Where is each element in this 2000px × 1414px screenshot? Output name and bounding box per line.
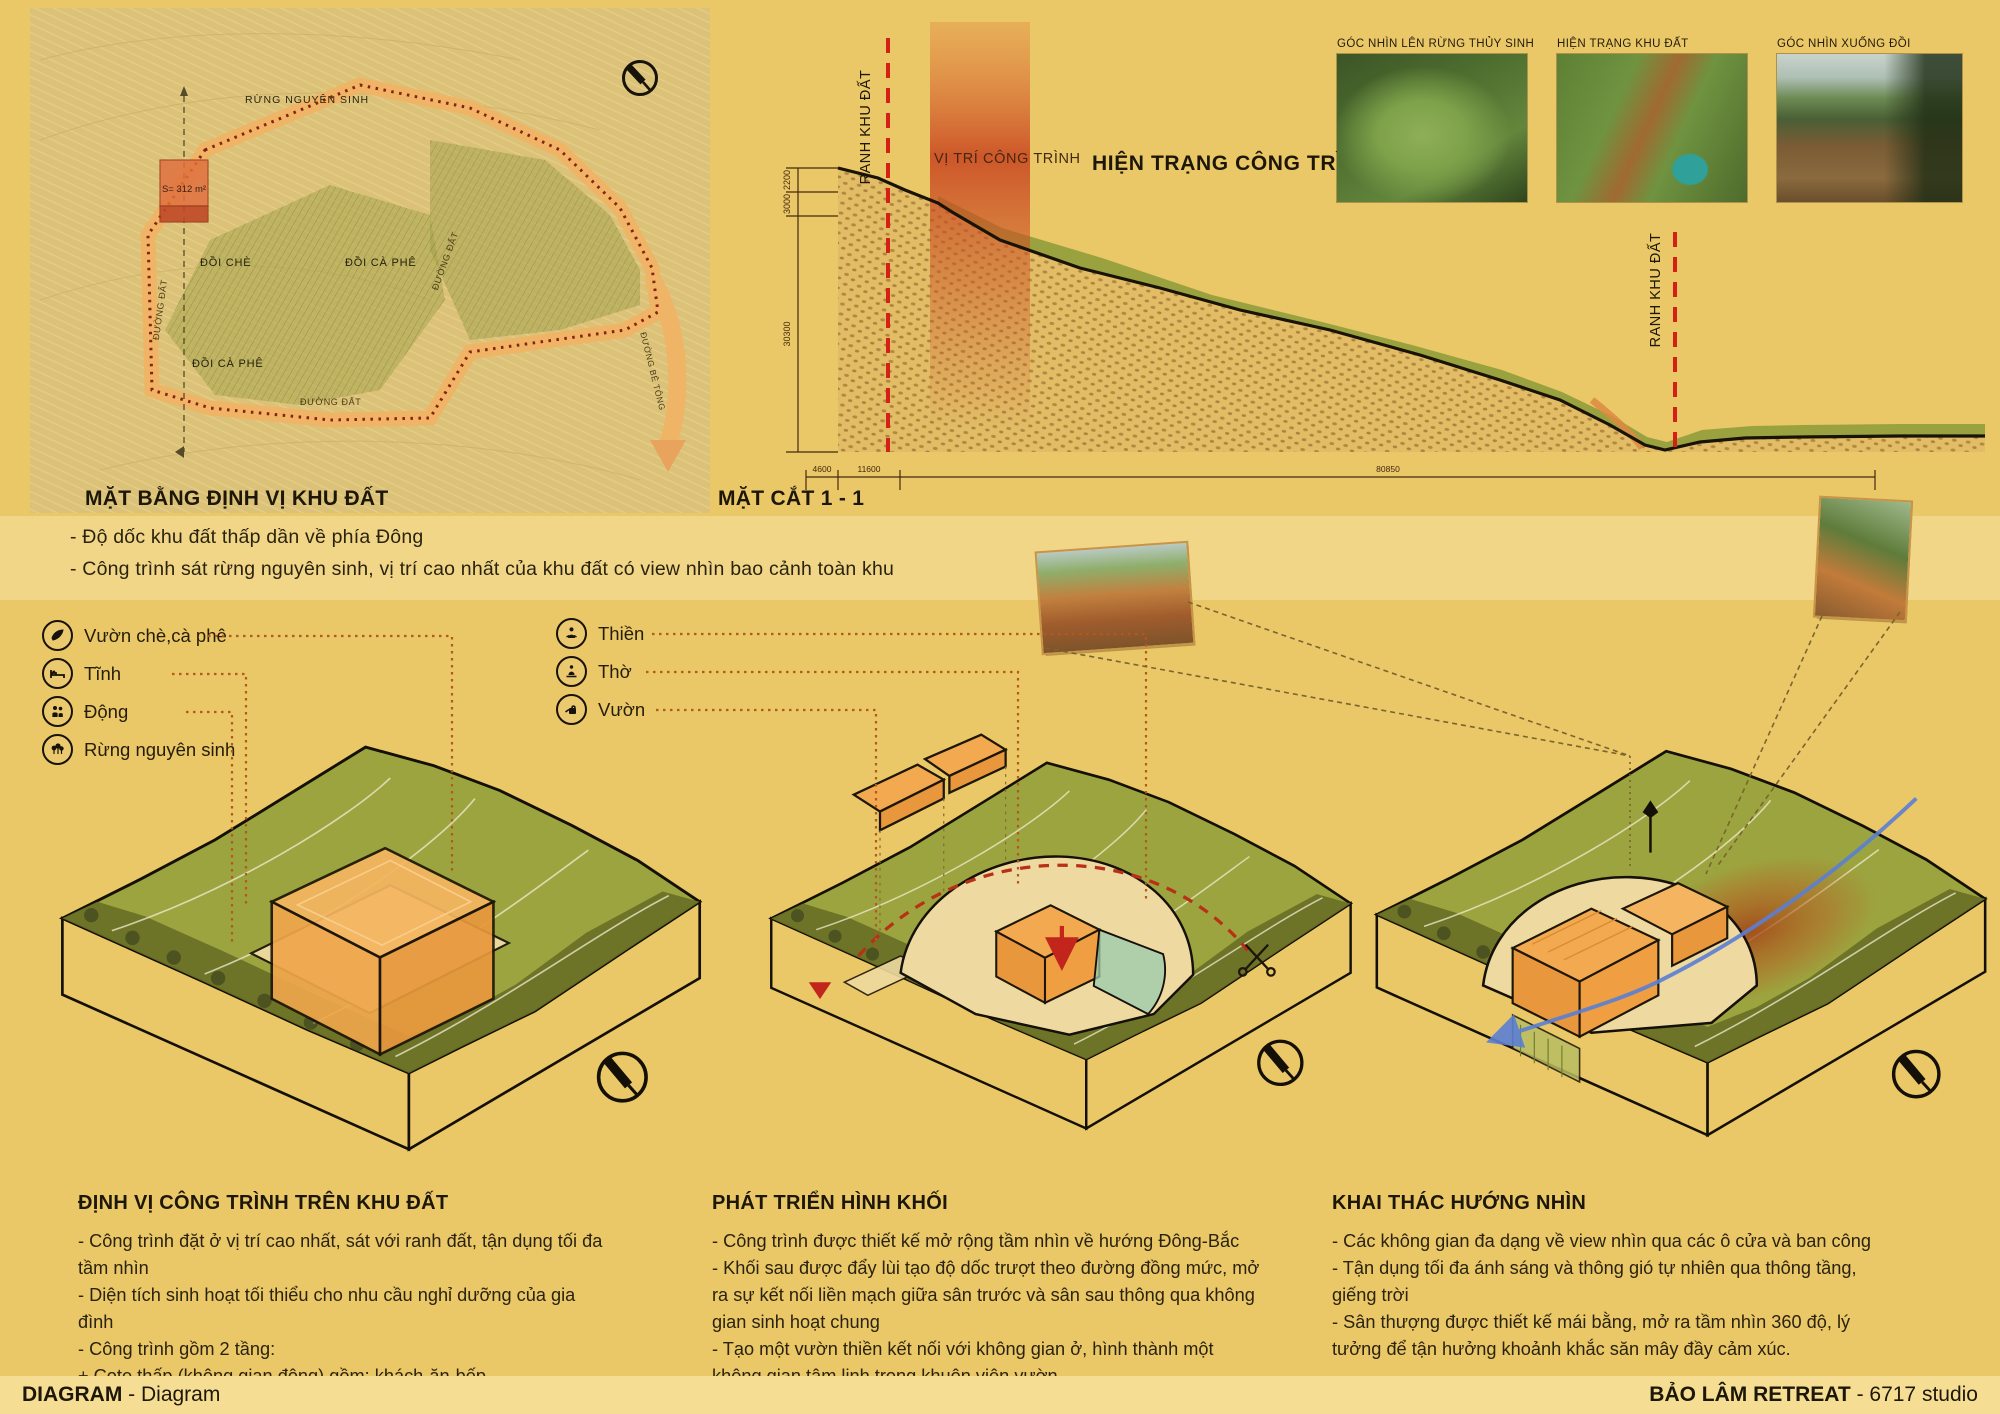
- column-heading: PHÁT TRIỂN HÌNH KHỐI: [712, 1192, 1260, 1215]
- legend-item-meditation: Thiền: [556, 618, 644, 649]
- column-heading: KHAI THÁC HƯỚNG NHÌN: [1332, 1192, 1892, 1215]
- area-label: S= 312 m²: [162, 184, 206, 195]
- vertical-dimensions: [786, 168, 838, 452]
- plan-note-1: - Độ dốc khu đất thấp dần về phía Đông: [70, 526, 423, 549]
- diagram-massing: [760, 690, 1360, 1160]
- column-line: - Công trình đặt ở vị trí cao nhất, sát …: [78, 1228, 613, 1282]
- column-line: - Khối sau được đẩy lùi tạo độ dốc trượt…: [712, 1255, 1260, 1336]
- photo-card-1: GÓC NHÌN LÊN RỪNG THỦY SINH: [1337, 38, 1534, 202]
- diagram-siting: [50, 683, 710, 1168]
- column-line: - Diện tích sinh hoạt tối thiểu cho nhu …: [78, 1282, 613, 1336]
- section-title: MẶT CẮT 1 - 1: [718, 487, 864, 511]
- column-line: - Công trình được thiết kế mở rộng tầm n…: [712, 1228, 1260, 1255]
- column-views: KHAI THÁC HƯỚNG NHÌN - Các không gian đa…: [1332, 1192, 1892, 1363]
- meditation-icon: [556, 618, 587, 649]
- forest-label: RỪNG NGUYÊN SINH: [245, 93, 369, 106]
- photo-site-aerial: [1557, 54, 1747, 202]
- dim-2200: 2200: [782, 170, 792, 190]
- compass-icon: [599, 1053, 646, 1100]
- dim-3000: 3000: [782, 194, 792, 214]
- column-line: - Công trình gồm 2 tầng:: [78, 1336, 613, 1363]
- position-label: VỊ TRÍ CÔNG TRÌNH: [934, 150, 1081, 167]
- coffee-hill-label-2: ĐỒI CÀ PHÊ: [192, 357, 264, 370]
- column-heading: ĐỊNH VỊ CÔNG TRÌNH TRÊN KHU ĐẤT: [78, 1192, 613, 1215]
- leaf-icon: [42, 620, 73, 651]
- photo-card-2: HIỆN TRẠNG KHU ĐẤT: [1557, 38, 1747, 202]
- plan-title: MẶT BẰNG ĐỊNH VỊ KHU ĐẤT: [85, 487, 389, 511]
- coffee-hill-label: ĐỒI CÀ PHÊ: [345, 256, 417, 269]
- building-position-band: [930, 22, 1030, 430]
- section-heading: HIỆN TRẠNG CÔNG TRÌNH: [1092, 151, 1374, 175]
- boundary-right-label: RANH KHU ĐẤT: [1647, 233, 1664, 348]
- studio-name: - 6717 studio: [1851, 1383, 1978, 1406]
- photo-hill-view: [1777, 54, 1962, 202]
- project-title: BẢO LÂM RETREAT: [1649, 1383, 1850, 1406]
- site-plan: S= 312 m² RỪNG NGUYÊN SINH ĐỒI CHÈ ĐỒI C…: [0, 0, 712, 513]
- presentation-board: S= 312 m² RỪNG NGUYÊN SINH ĐỒI CHÈ ĐỒI C…: [0, 0, 2000, 1414]
- plan-note-2: - Công trình sát rừng nguyên sinh, vị tr…: [70, 558, 894, 581]
- photo-caption-1: GÓC NHÌN LÊN RỪNG THỦY SINH: [1337, 38, 1534, 50]
- column-line: - Sân thượng được thiết kế mái bằng, mở …: [1332, 1309, 1892, 1363]
- column-massing: PHÁT TRIỂN HÌNH KHỐI - Công trình được t…: [712, 1192, 1260, 1390]
- column-line: - Tận dụng tối đa ánh sáng và thông gió …: [1332, 1255, 1892, 1309]
- view-photo-balcony: [1037, 543, 1194, 653]
- footer-right: BẢO LÂM RETREAT - 6717 studio: [1649, 1383, 1978, 1407]
- compass-icon: [1259, 1041, 1302, 1084]
- legend-item-garden: Vườn chè,cà phê: [42, 620, 227, 651]
- column-line: - Các không gian đa dạng về view nhìn qu…: [1332, 1228, 1892, 1255]
- boundary-left-label: RANH KHU ĐẤT: [857, 70, 874, 185]
- dim-80850: 80850: [1376, 464, 1400, 474]
- dirt-road-bottom-label: ĐƯỜNG ĐẤT: [300, 397, 361, 407]
- photo-forest-view: [1337, 54, 1527, 202]
- footer-left: DIAGRAM - Diagram: [22, 1383, 220, 1407]
- tea-hill-label: ĐỒI CHÈ: [200, 256, 251, 269]
- photo-card-3: GÓC NHÌN XUỐNG ĐỒI: [1777, 38, 1962, 202]
- photo-caption-3: GÓC NHÌN XUỐNG ĐỒI: [1777, 38, 1962, 50]
- footer-left-sub: - Diagram: [122, 1383, 220, 1406]
- dim-30300: 30300: [782, 321, 792, 346]
- view-photo-landscape: [1815, 498, 1911, 621]
- photo-caption-2: HIỆN TRẠNG KHU ĐẤT: [1557, 38, 1747, 50]
- dim-11600: 11600: [857, 464, 880, 474]
- horizontal-dimensions: [806, 470, 1875, 490]
- compass-icon: [1894, 1051, 1939, 1096]
- diagram-views: [1365, 690, 1995, 1153]
- dim-4600: 4600: [813, 464, 832, 474]
- footer-left-title: DIAGRAM: [22, 1383, 122, 1406]
